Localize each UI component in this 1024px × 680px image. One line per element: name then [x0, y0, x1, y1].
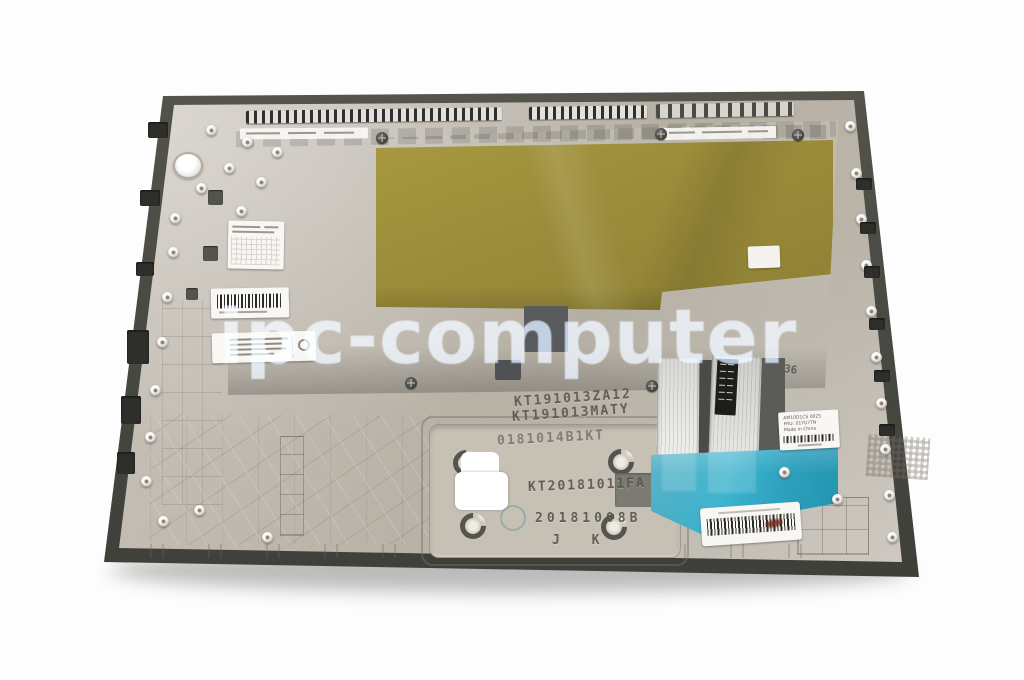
screw-boss — [206, 125, 217, 136]
side-cutout — [864, 266, 880, 278]
screw-boss — [194, 505, 205, 516]
side-cutout — [856, 178, 872, 190]
cross-screw — [405, 377, 417, 389]
screw-boss — [168, 247, 179, 258]
molded-square-hole — [186, 288, 198, 300]
screw-boss — [866, 306, 877, 317]
screw-boss — [845, 121, 856, 132]
stamped-code: 20181008B — [535, 511, 641, 526]
screw-boss — [272, 147, 283, 158]
cross-screw — [376, 132, 388, 144]
side-cutout — [879, 424, 895, 436]
round-mount-part — [173, 152, 203, 179]
watermark-text: ipc-computer — [218, 292, 878, 381]
port-cutout — [121, 396, 141, 424]
screw-boss — [779, 467, 790, 478]
screw-boss — [871, 352, 882, 363]
screw-boss — [832, 494, 843, 505]
port-cutout — [148, 122, 168, 138]
fru-line: Made in China — [784, 427, 816, 435]
ink-stamp-circle — [500, 505, 526, 531]
screw-boss — [170, 213, 181, 224]
screw-boss — [145, 432, 156, 443]
product-photo-stage: KT191013ZA12 KT191013MATY 0181014B1KT KT… — [0, 0, 1024, 680]
screw-boss — [887, 532, 898, 543]
bottom-barcode-label — [700, 502, 802, 547]
cross-screw — [792, 129, 804, 141]
side-cutout — [860, 222, 876, 234]
screw-boss — [158, 516, 169, 527]
barcode — [783, 434, 835, 444]
label-grid — [231, 237, 280, 266]
label-text-line — [264, 226, 278, 228]
side-cutout — [869, 318, 885, 330]
screw-boss — [876, 398, 887, 409]
cross-screw — [646, 380, 658, 392]
screw-boss — [880, 444, 891, 455]
screw-boss — [236, 206, 247, 217]
screw-boss — [150, 385, 161, 396]
barcode — [707, 513, 796, 536]
thin-strip-label — [664, 126, 776, 140]
thin-strip-label — [240, 127, 368, 139]
molded-square-hole — [203, 246, 218, 261]
port-cutout — [127, 330, 149, 364]
screw-boss — [884, 490, 895, 501]
screw-boss — [256, 177, 267, 188]
stamped-code: J K — [552, 533, 611, 548]
screw-boss — [196, 183, 207, 194]
touchpad-cutout — [455, 472, 508, 510]
molded-ribs — [162, 300, 222, 505]
screw-boss — [242, 137, 253, 148]
side-cutout — [874, 370, 890, 382]
grid-label — [228, 221, 285, 270]
plate-white-sticker — [748, 245, 781, 268]
molded-square-hole — [208, 190, 223, 205]
screw-boss — [141, 476, 152, 487]
screw-boss — [162, 292, 173, 303]
label-text-line — [798, 443, 822, 446]
molded-ladder — [280, 436, 304, 536]
label-text-line — [718, 508, 780, 514]
hinge-vent-slats — [656, 102, 794, 118]
port-cutout — [140, 190, 160, 206]
port-cutout — [117, 452, 135, 474]
screw-boss — [157, 337, 168, 348]
molded-dot-matrix — [866, 434, 931, 480]
label-text-line — [232, 231, 274, 234]
cross-screw — [655, 128, 667, 140]
hinge-vent-slots — [529, 105, 647, 120]
fru-label: AM10D1CS 002S FRU: 01YU7TN Made in China — [778, 409, 840, 450]
screw-boss — [224, 163, 235, 174]
port-cutout — [136, 262, 154, 276]
label-text-line — [232, 226, 260, 228]
screw-boss — [262, 532, 273, 543]
